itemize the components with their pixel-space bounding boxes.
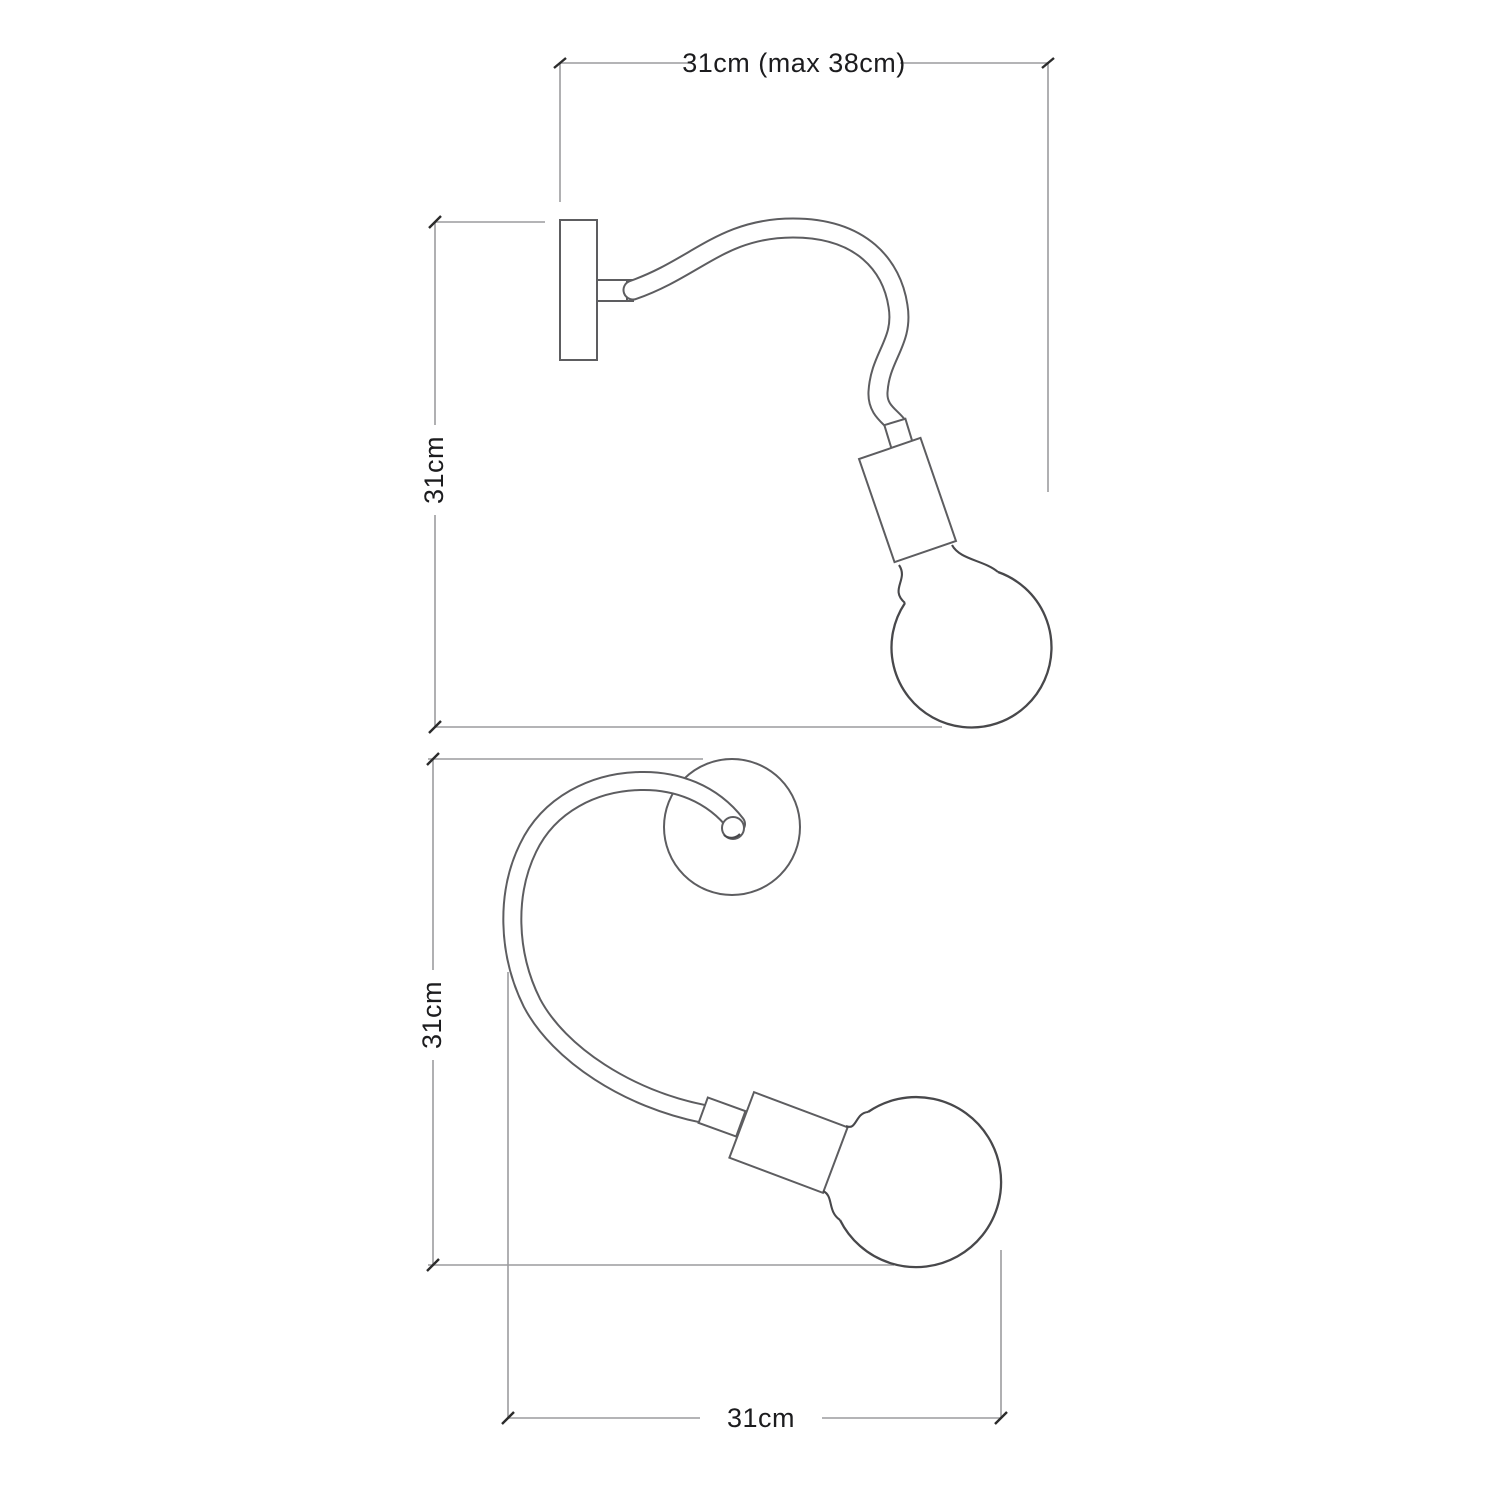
light-bulb — [891, 572, 1051, 727]
diagram-canvas: 31cm (max 38cm) 31cm — [0, 0, 1500, 1500]
flex-arm-outline — [633, 228, 899, 425]
lamp-socket — [859, 438, 956, 562]
bulb-neck-lower — [823, 1191, 840, 1220]
top-view-lamp — [512, 759, 1001, 1267]
top-view-height-label: 31cm — [417, 981, 447, 1049]
side-view-width-dimension: 31cm (max 38cm) — [554, 48, 1054, 492]
side-view-width-label: 31cm (max 38cm) — [682, 48, 906, 78]
lamp-dimension-diagram: 31cm (max 38cm) 31cm — [0, 0, 1500, 1500]
light-bulb — [840, 1097, 1001, 1267]
side-view-lamp — [560, 220, 1051, 727]
lamp-socket — [729, 1092, 847, 1193]
top-view: 31cm 31cm — [417, 753, 1007, 1433]
wall-plate — [560, 220, 597, 360]
bulb-neck-right — [952, 545, 998, 572]
side-view-height-label: 31cm — [419, 436, 449, 504]
bulb-neck-left — [899, 565, 905, 603]
side-view: 31cm (max 38cm) 31cm — [419, 48, 1054, 733]
flex-arm-core — [633, 228, 899, 425]
socket-collar — [699, 1097, 746, 1136]
bulb-neck-upper — [846, 1112, 868, 1127]
top-view-width-label: 31cm — [727, 1403, 795, 1433]
